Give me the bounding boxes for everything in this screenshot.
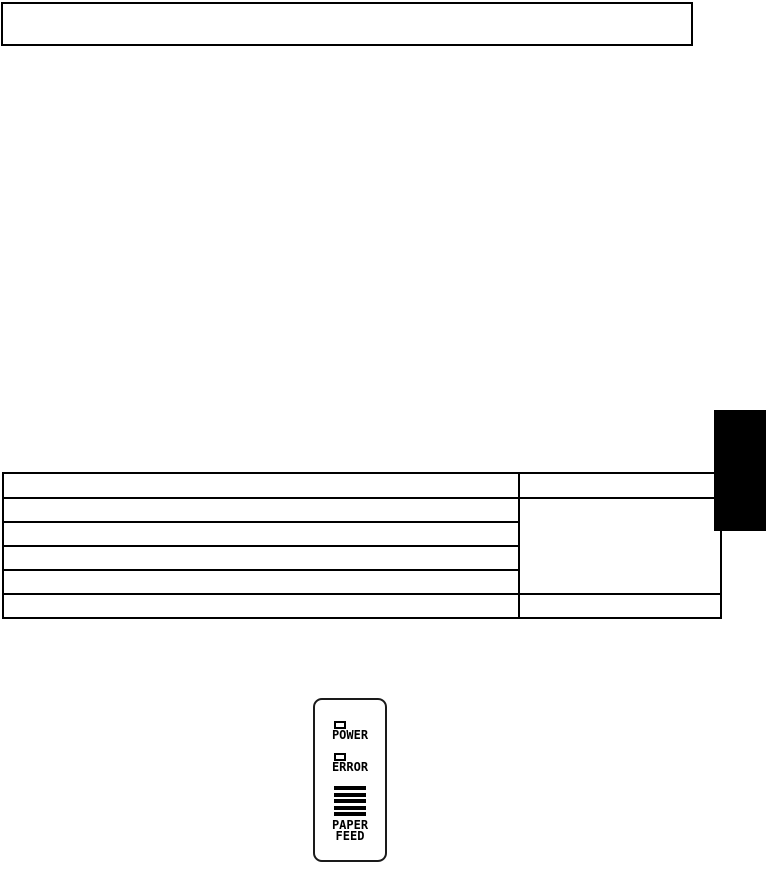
- table-cell: [3, 498, 519, 522]
- table-footer-cell-left: [3, 594, 519, 618]
- control-panel-illustration: POWER ERROR PAPER FEED: [313, 698, 387, 862]
- feed-bar: [334, 793, 366, 797]
- feed-bar: [334, 812, 366, 816]
- table-merged-cell: [519, 498, 721, 594]
- table-footer-row: [3, 594, 721, 618]
- power-led-icon: [334, 721, 346, 729]
- paper-feed-button-icon: [334, 786, 366, 816]
- spec-table: [2, 472, 722, 619]
- table-header-cell-right: [519, 473, 721, 498]
- table-cell: [3, 570, 519, 594]
- table-header-row: [3, 473, 721, 498]
- feed-bar: [334, 806, 366, 810]
- error-led-label: ERROR: [332, 762, 368, 773]
- error-led-icon: [334, 753, 346, 761]
- table-header-cell-left: [3, 473, 519, 498]
- table-row: [3, 498, 721, 522]
- table-cell: [3, 546, 519, 570]
- table-footer-cell-right: [519, 594, 721, 618]
- paper-feed-label: PAPER FEED: [332, 820, 368, 842]
- table-cell: [3, 522, 519, 546]
- section-thumb-tab: [714, 410, 766, 531]
- feed-bar: [334, 799, 366, 803]
- power-led-label: POWER: [332, 730, 368, 741]
- paper-feed-label-line2: FEED: [336, 831, 365, 842]
- feed-bar: [334, 786, 366, 790]
- note-box: [1, 2, 693, 46]
